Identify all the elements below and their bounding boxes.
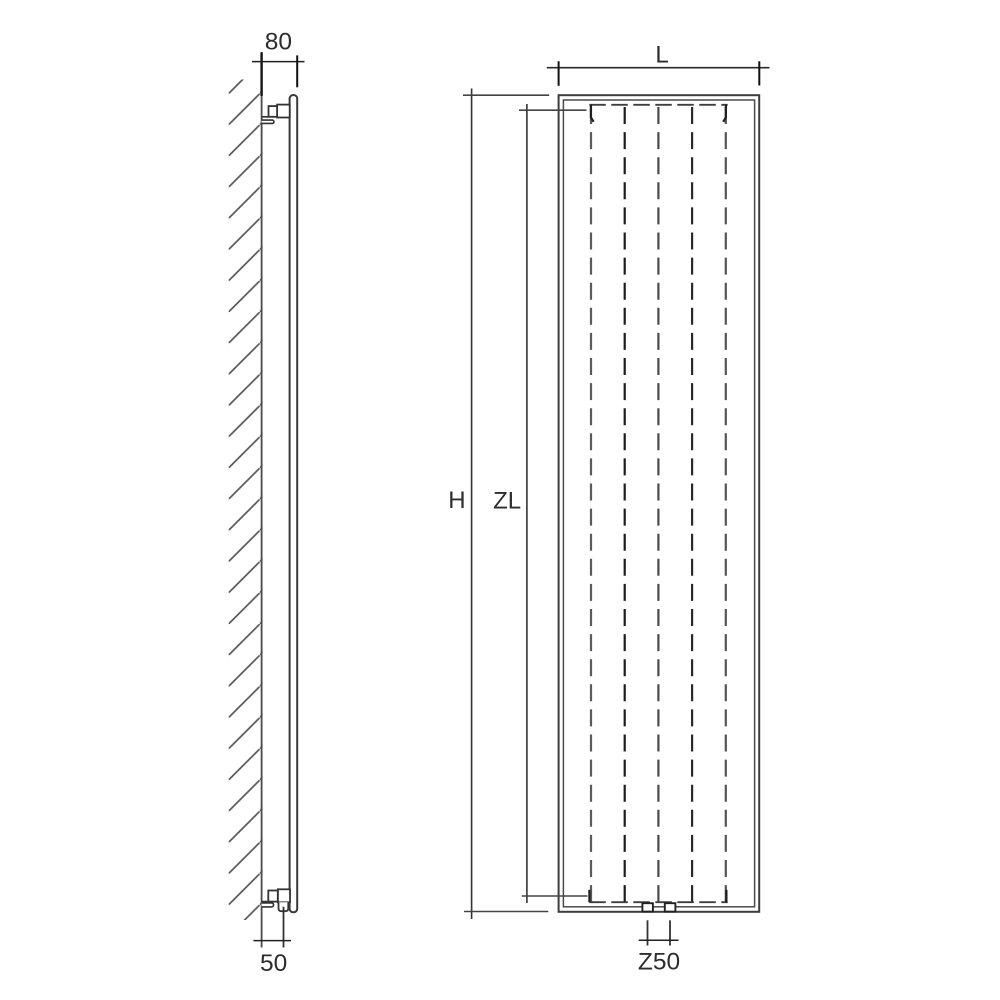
svg-text:50: 50 <box>260 950 287 977</box>
svg-text:H: H <box>448 487 465 514</box>
svg-text:80: 80 <box>265 29 292 56</box>
svg-text:Z50: Z50 <box>638 948 680 975</box>
svg-text:L: L <box>655 42 668 69</box>
svg-text:ZL: ZL <box>493 487 521 514</box>
